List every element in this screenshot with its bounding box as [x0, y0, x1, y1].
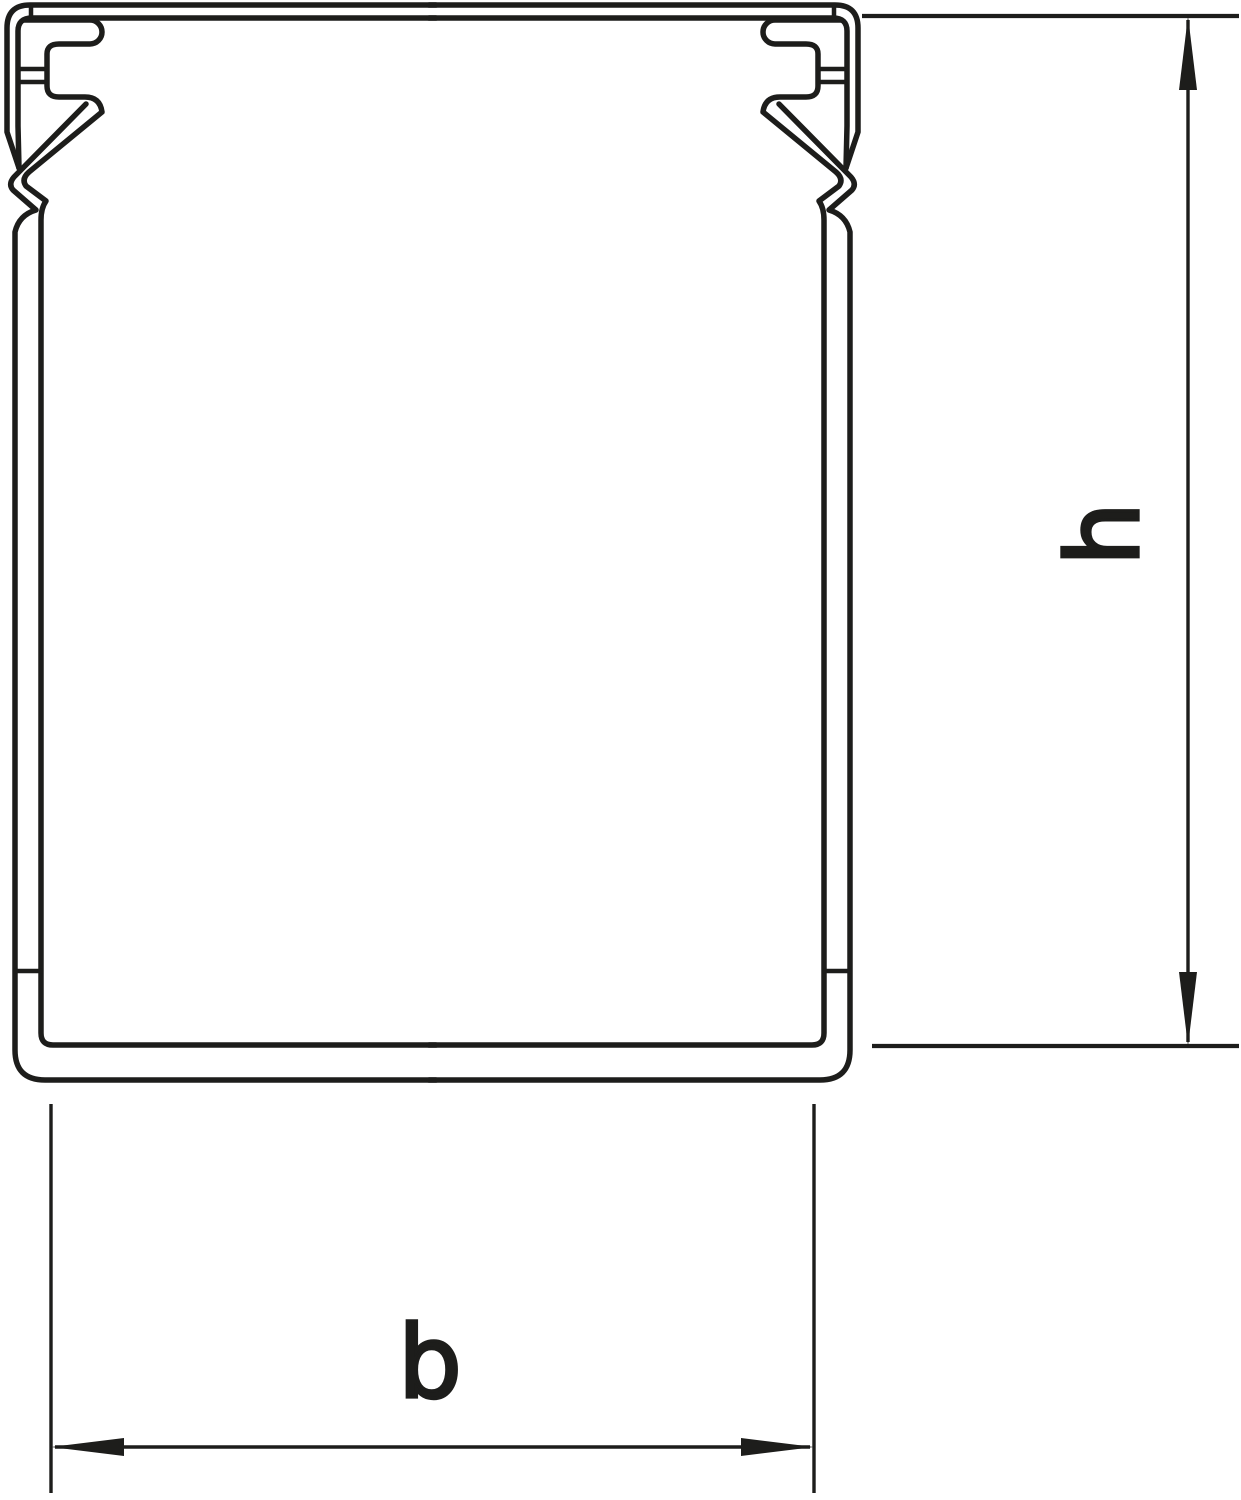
profile-right-half — [429, 5, 858, 1080]
h-label: h — [1045, 502, 1162, 565]
h-arrowhead-top — [1179, 16, 1197, 90]
duct-profile — [7, 5, 858, 1080]
duct-cross-section-drawing: h b — [0, 0, 1241, 1500]
b-label: b — [398, 1304, 461, 1421]
b-arrowhead-right — [741, 1438, 814, 1456]
clip-flange-and-inner-wall — [24, 20, 436, 1045]
b-arrowhead-left — [51, 1438, 124, 1456]
cover-underside-outline — [18, 18, 436, 168]
drawing-canvas: h b — [0, 0, 1241, 1500]
cover-top-outline — [7, 5, 436, 168]
clip-barb-and-outer-wall — [11, 104, 436, 1080]
h-arrowhead-bottom — [1179, 972, 1197, 1046]
profile-left-half — [7, 5, 436, 1080]
dimension-b: b — [51, 1104, 814, 1493]
dimension-h: h — [862, 16, 1239, 1046]
